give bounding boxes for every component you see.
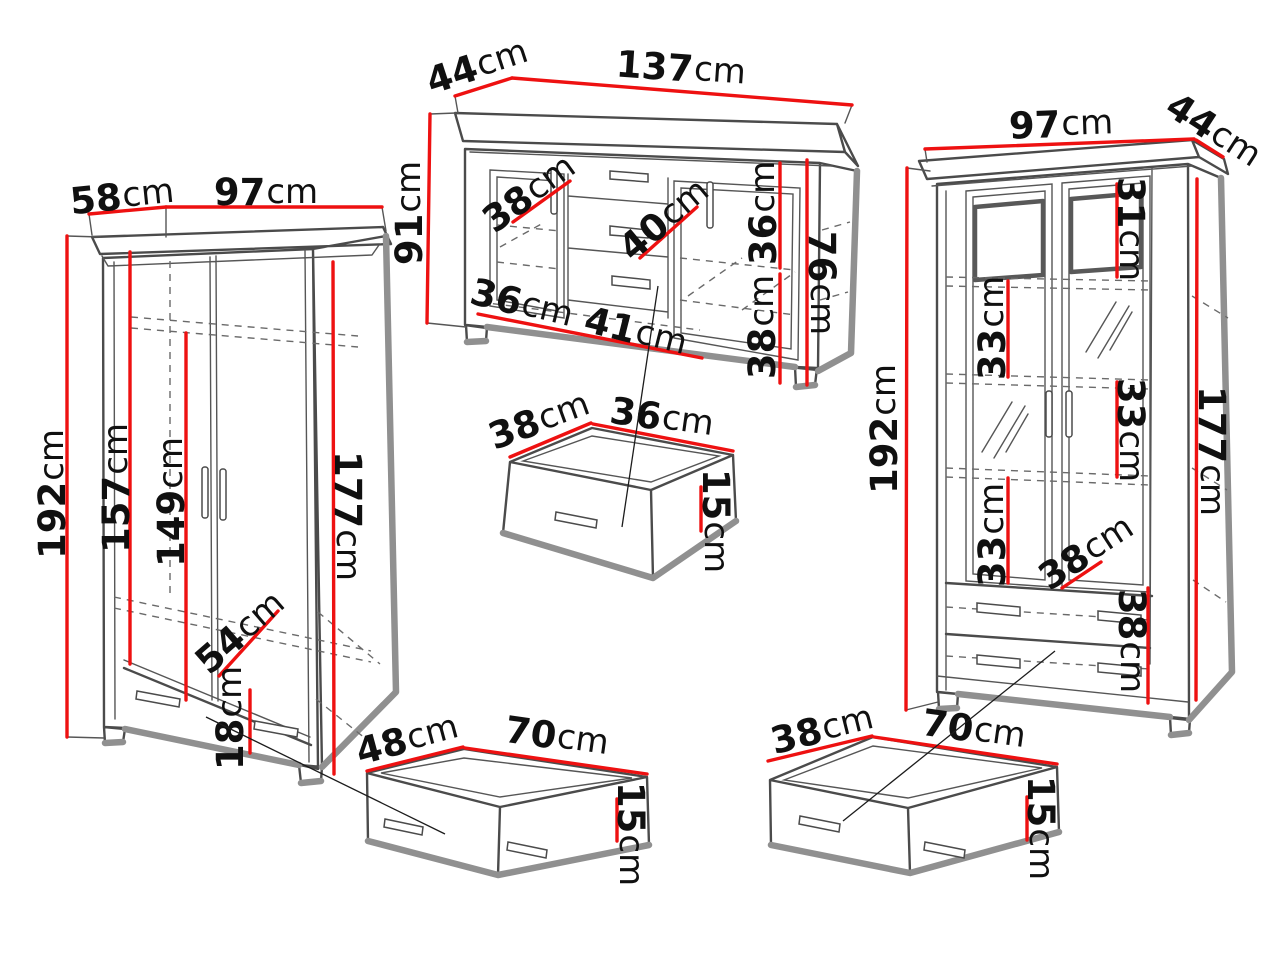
right-drawer-drawing: 38cm 70cm 15cm: [766, 696, 1062, 881]
cabinet-extension-lines: [906, 149, 938, 710]
wardrobe-drawing: 58cm 97cm 192cm 157cm 149cm 177cm 54cm 1…: [31, 169, 397, 783]
display-cabinet-drawing: 97cm 44cm 192cm 31cm 33cm 33cm 33cm 38cm…: [863, 84, 1270, 735]
sideboard-height-label: 91cm: [388, 161, 431, 265]
cabinet-top-right-label: 31cm: [1110, 177, 1153, 281]
cabinet-height-line: [906, 168, 907, 710]
sideboard-interior-height-label: 76cm: [801, 231, 844, 335]
small-drawer-height-label: 15cm: [695, 469, 738, 573]
cabinet-height-label: 192cm: [863, 364, 906, 494]
cabinet-interior-right-label: 177cm: [1191, 386, 1234, 516]
wardrobe-drawer-height-label: 18cm: [209, 666, 252, 770]
wardrobe-width-label: 97cm: [214, 171, 318, 214]
wardrobe-interior-left-label: 157cm: [95, 423, 138, 553]
cabinet-right-middle-label: 33cm: [1110, 378, 1153, 482]
cabinet-door-handle-right: [1066, 391, 1072, 437]
sideboard-drawing: 44cm 137cm 91cm 38cm 40cm 36cm 76cm 38cm…: [388, 29, 859, 387]
center-drawer-height-label: 15cm: [610, 782, 653, 886]
wardrobe-door-handle-left: [202, 467, 208, 518]
cabinet-door-handle-left: [1046, 391, 1052, 437]
wardrobe-door-handle-right: [220, 469, 226, 520]
cabinet-drawer-section-label: 38cm: [1111, 589, 1154, 693]
small-drawer-drawing: 38cm 36cm 15cm: [483, 382, 738, 578]
wardrobe-interior-center-label: 149cm: [150, 437, 193, 567]
diagram-canvas: 58cm 97cm 192cm 157cm 149cm 177cm 54cm 1…: [0, 0, 1280, 960]
right-drawer-height-label: 15cm: [1020, 776, 1063, 880]
sideboard-width-label: 137cm: [615, 42, 748, 94]
sideboard-right-lower-label: 38cm: [741, 275, 784, 379]
cabinet-left-upper-label: 33cm: [971, 276, 1014, 380]
center-drawer-drawing: 48cm 70cm 15cm: [351, 705, 652, 886]
furniture-dimension-diagram: 58cm 97cm 192cm 157cm 149cm 177cm 54cm 1…: [0, 0, 1280, 960]
cabinet-width-label: 97cm: [1008, 101, 1114, 148]
wardrobe-height-label: 192cm: [31, 429, 74, 559]
wardrobe-interior-right-label: 177cm: [327, 451, 370, 581]
sideboard-depth-label: 44cm: [421, 29, 534, 102]
cabinet-left-lower-label: 33cm: [971, 483, 1014, 587]
wardrobe-depth-label: 58cm: [68, 169, 176, 223]
sideboard-right-upper-label: 36cm: [742, 161, 785, 265]
